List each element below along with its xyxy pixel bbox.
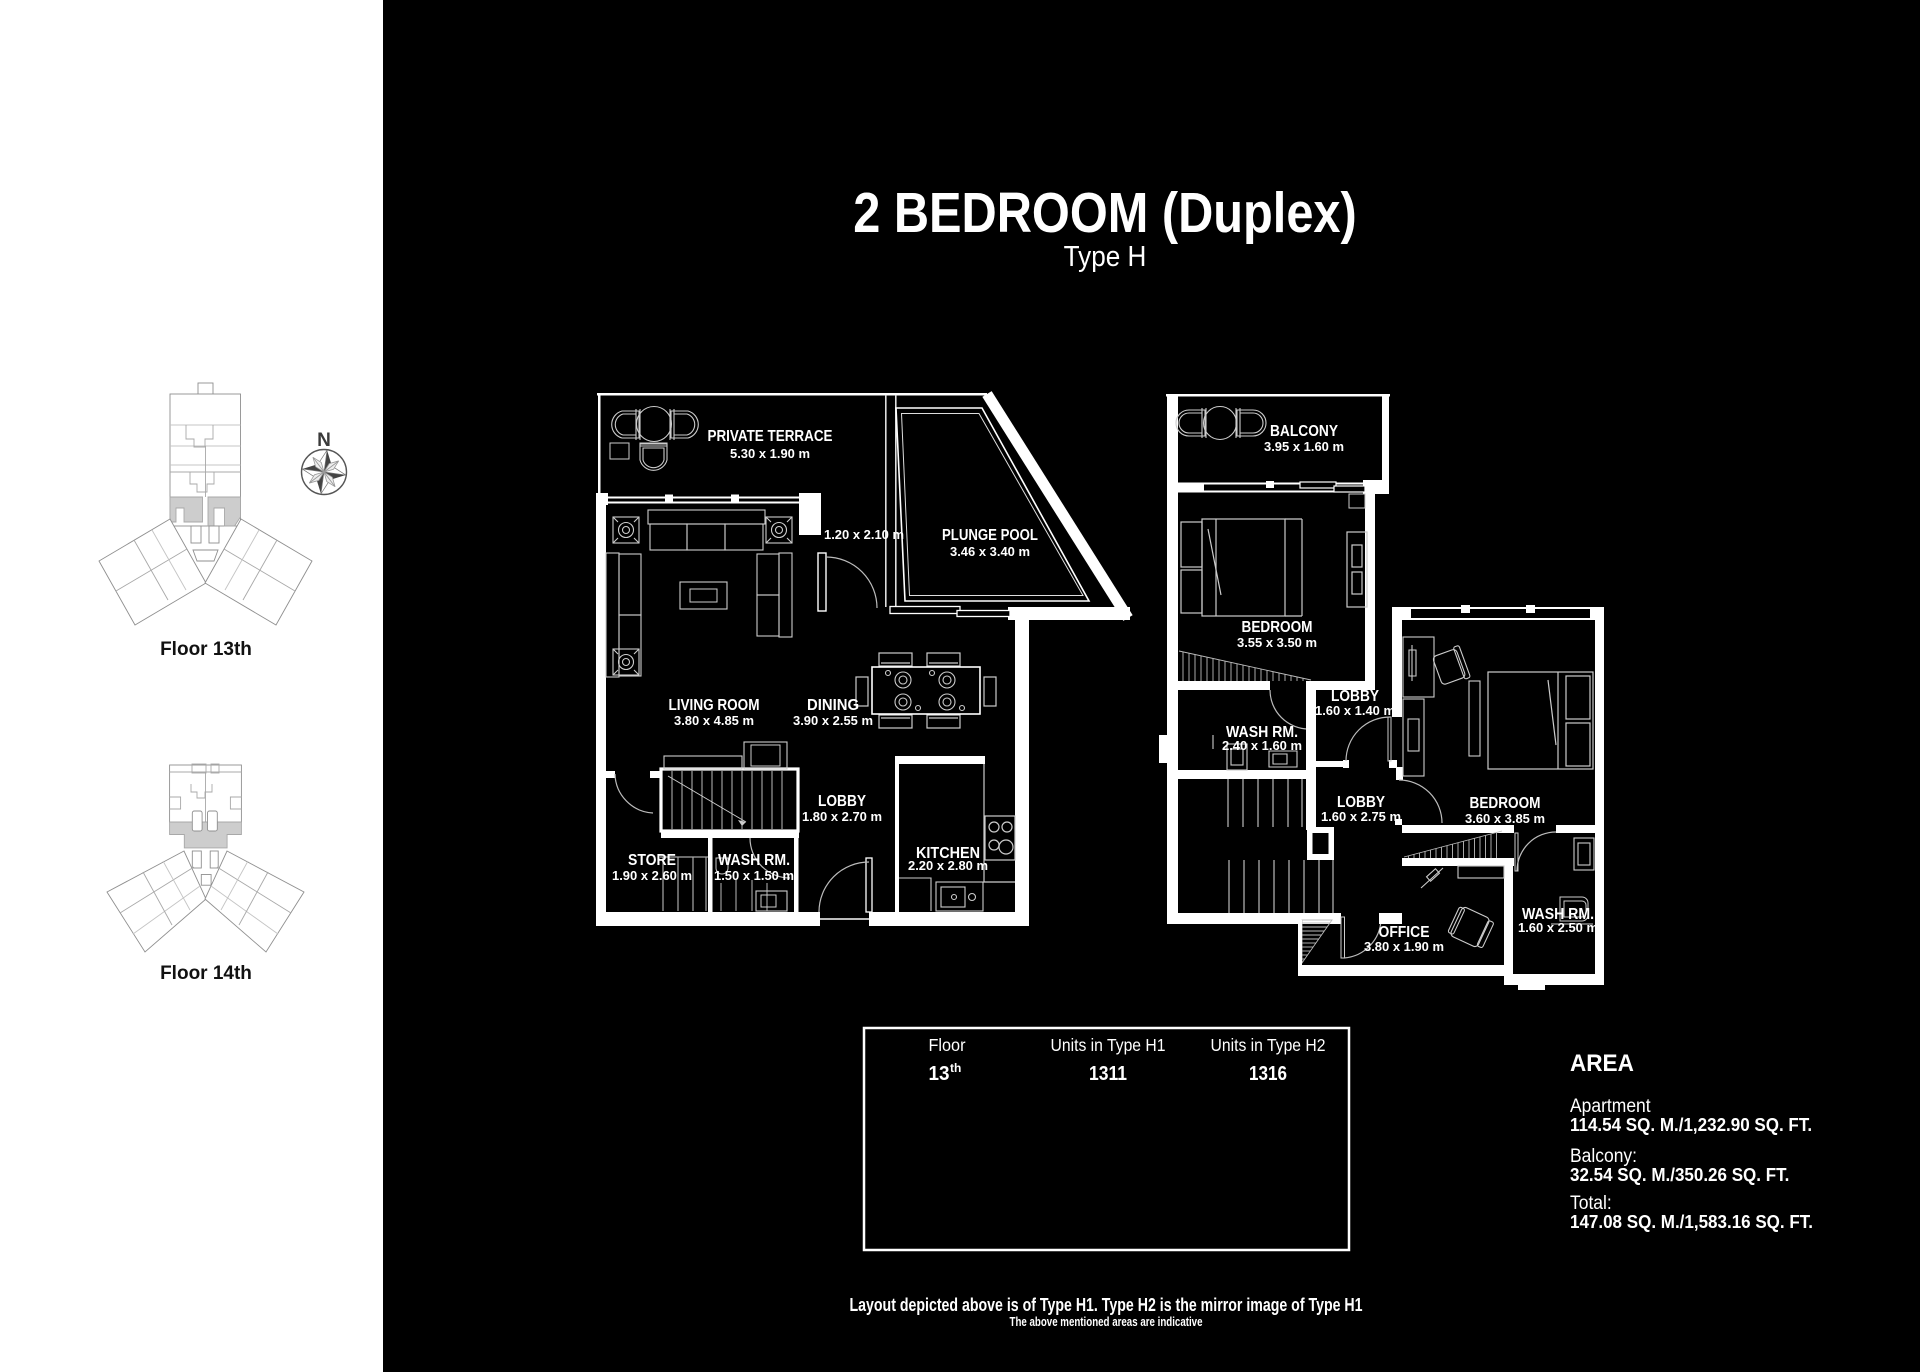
svg-text:Floor: Floor xyxy=(929,1035,966,1055)
svg-text:3.60 x 3.85 m: 3.60 x 3.85 m xyxy=(1465,811,1545,826)
svg-text:5.30 x 1.90 m: 5.30 x 1.90 m xyxy=(730,446,810,461)
svg-text:Floor 13th: Floor 13th xyxy=(160,639,252,660)
svg-text:Apartment: Apartment xyxy=(1570,1094,1651,1116)
svg-text:PRIVATE TERRACE: PRIVATE TERRACE xyxy=(708,428,833,445)
svg-text:1.20 x 2.10 m: 1.20 x 2.10 m xyxy=(824,527,904,542)
svg-text:114.54 SQ. M./1,232.90 SQ. FT.: 114.54 SQ. M./1,232.90 SQ. FT. xyxy=(1570,1114,1812,1135)
svg-text:3.55 x 3.50 m: 3.55 x 3.50 m xyxy=(1237,635,1317,650)
svg-text:1311: 1311 xyxy=(1089,1063,1127,1085)
svg-text:DINING: DINING xyxy=(807,697,859,714)
svg-text:1316: 1316 xyxy=(1249,1063,1287,1085)
svg-text:STORE: STORE xyxy=(628,852,676,869)
svg-text:3.95 x 1.60 m: 3.95 x 1.60 m xyxy=(1264,439,1344,454)
svg-text:BALCONY: BALCONY xyxy=(1270,423,1339,440)
svg-text:3.90 x 2.55 m: 3.90 x 2.55 m xyxy=(793,713,873,728)
svg-text:32.54 SQ. M./350.26 SQ. FT.: 32.54 SQ. M./350.26 SQ. FT. xyxy=(1570,1164,1789,1185)
svg-text:BEDROOM: BEDROOM xyxy=(1470,795,1541,812)
svg-text:Units in Type H1: Units in Type H1 xyxy=(1051,1035,1166,1055)
svg-text:2 BEDROOM (Duplex): 2 BEDROOM (Duplex) xyxy=(853,181,1357,244)
svg-text:AREA: AREA xyxy=(1570,1049,1634,1076)
svg-text:Type H: Type H xyxy=(1064,240,1147,273)
svg-text:Layout depicted above is of Ty: Layout depicted above is of Type H1. Typ… xyxy=(850,1294,1363,1315)
svg-text:Units in Type H2: Units in Type H2 xyxy=(1211,1035,1326,1055)
svg-text:3.46 x 3.40 m: 3.46 x 3.40 m xyxy=(950,544,1030,559)
svg-text:2.40 x 1.60 m: 2.40 x 1.60 m xyxy=(1222,738,1302,753)
svg-text:1.80 x 2.70 m: 1.80 x 2.70 m xyxy=(802,809,882,824)
svg-text:1.60 x 2.75 m: 1.60 x 2.75 m xyxy=(1321,809,1401,824)
svg-text:Total:: Total: xyxy=(1570,1191,1612,1213)
svg-text:The above mentioned areas are: The above mentioned areas are indicative xyxy=(1010,1315,1203,1329)
svg-text:3.80 x 4.85 m: 3.80 x 4.85 m xyxy=(674,713,754,728)
svg-text:1.60 x 2.50 m: 1.60 x 2.50 m xyxy=(1518,920,1598,935)
svg-text:Floor 14th: Floor 14th xyxy=(160,963,252,984)
svg-text:1.90 x 2.60 m: 1.90 x 2.60 m xyxy=(612,868,692,883)
svg-text:13: 13 xyxy=(929,1063,950,1085)
svg-text:N: N xyxy=(317,430,331,451)
svg-text:1.60 x 1.40 m: 1.60 x 1.40 m xyxy=(1315,703,1395,718)
svg-text:Balcony:: Balcony: xyxy=(1570,1144,1637,1166)
svg-text:LOBBY: LOBBY xyxy=(818,793,867,810)
svg-text:147.08 SQ. M./1,583.16 SQ. FT.: 147.08 SQ. M./1,583.16 SQ. FT. xyxy=(1570,1211,1813,1232)
svg-text:1.50 x 1.50 m: 1.50 x 1.50 m xyxy=(714,868,794,883)
svg-text:LIVING ROOM: LIVING ROOM xyxy=(669,697,760,714)
svg-text:2.20 x 2.80 m: 2.20 x 2.80 m xyxy=(908,858,988,873)
svg-text:3.80 x 1.90 m: 3.80 x 1.90 m xyxy=(1364,939,1444,954)
svg-text:th: th xyxy=(950,1061,961,1075)
svg-text:WASH RM.: WASH RM. xyxy=(718,852,790,869)
svg-text:BEDROOM: BEDROOM xyxy=(1242,619,1313,636)
svg-text:PLUNGE POOL: PLUNGE POOL xyxy=(942,527,1038,544)
